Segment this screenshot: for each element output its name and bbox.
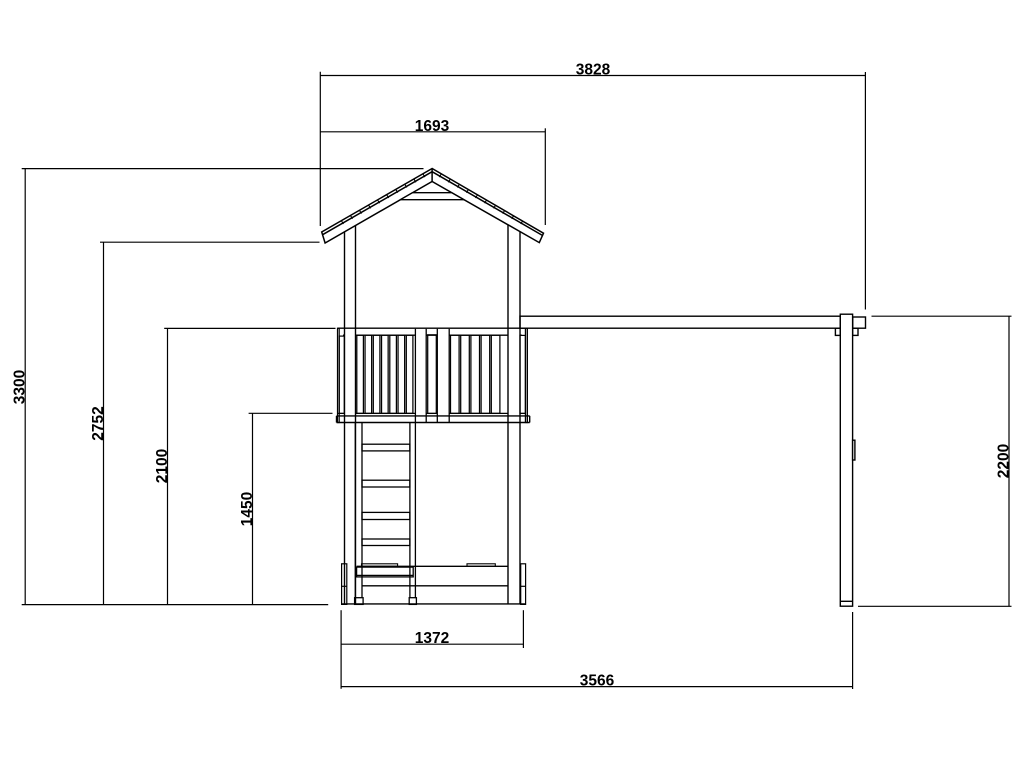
- svg-text:3828: 3828: [576, 61, 611, 78]
- svg-text:3566: 3566: [580, 673, 615, 690]
- svg-text:1372: 1372: [415, 630, 449, 647]
- svg-text:1693: 1693: [415, 118, 450, 135]
- svg-text:2200: 2200: [995, 444, 1012, 478]
- svg-text:2100: 2100: [154, 449, 171, 483]
- svg-text:3300: 3300: [12, 370, 29, 404]
- svg-text:2752: 2752: [90, 406, 107, 440]
- svg-text:1450: 1450: [239, 492, 256, 526]
